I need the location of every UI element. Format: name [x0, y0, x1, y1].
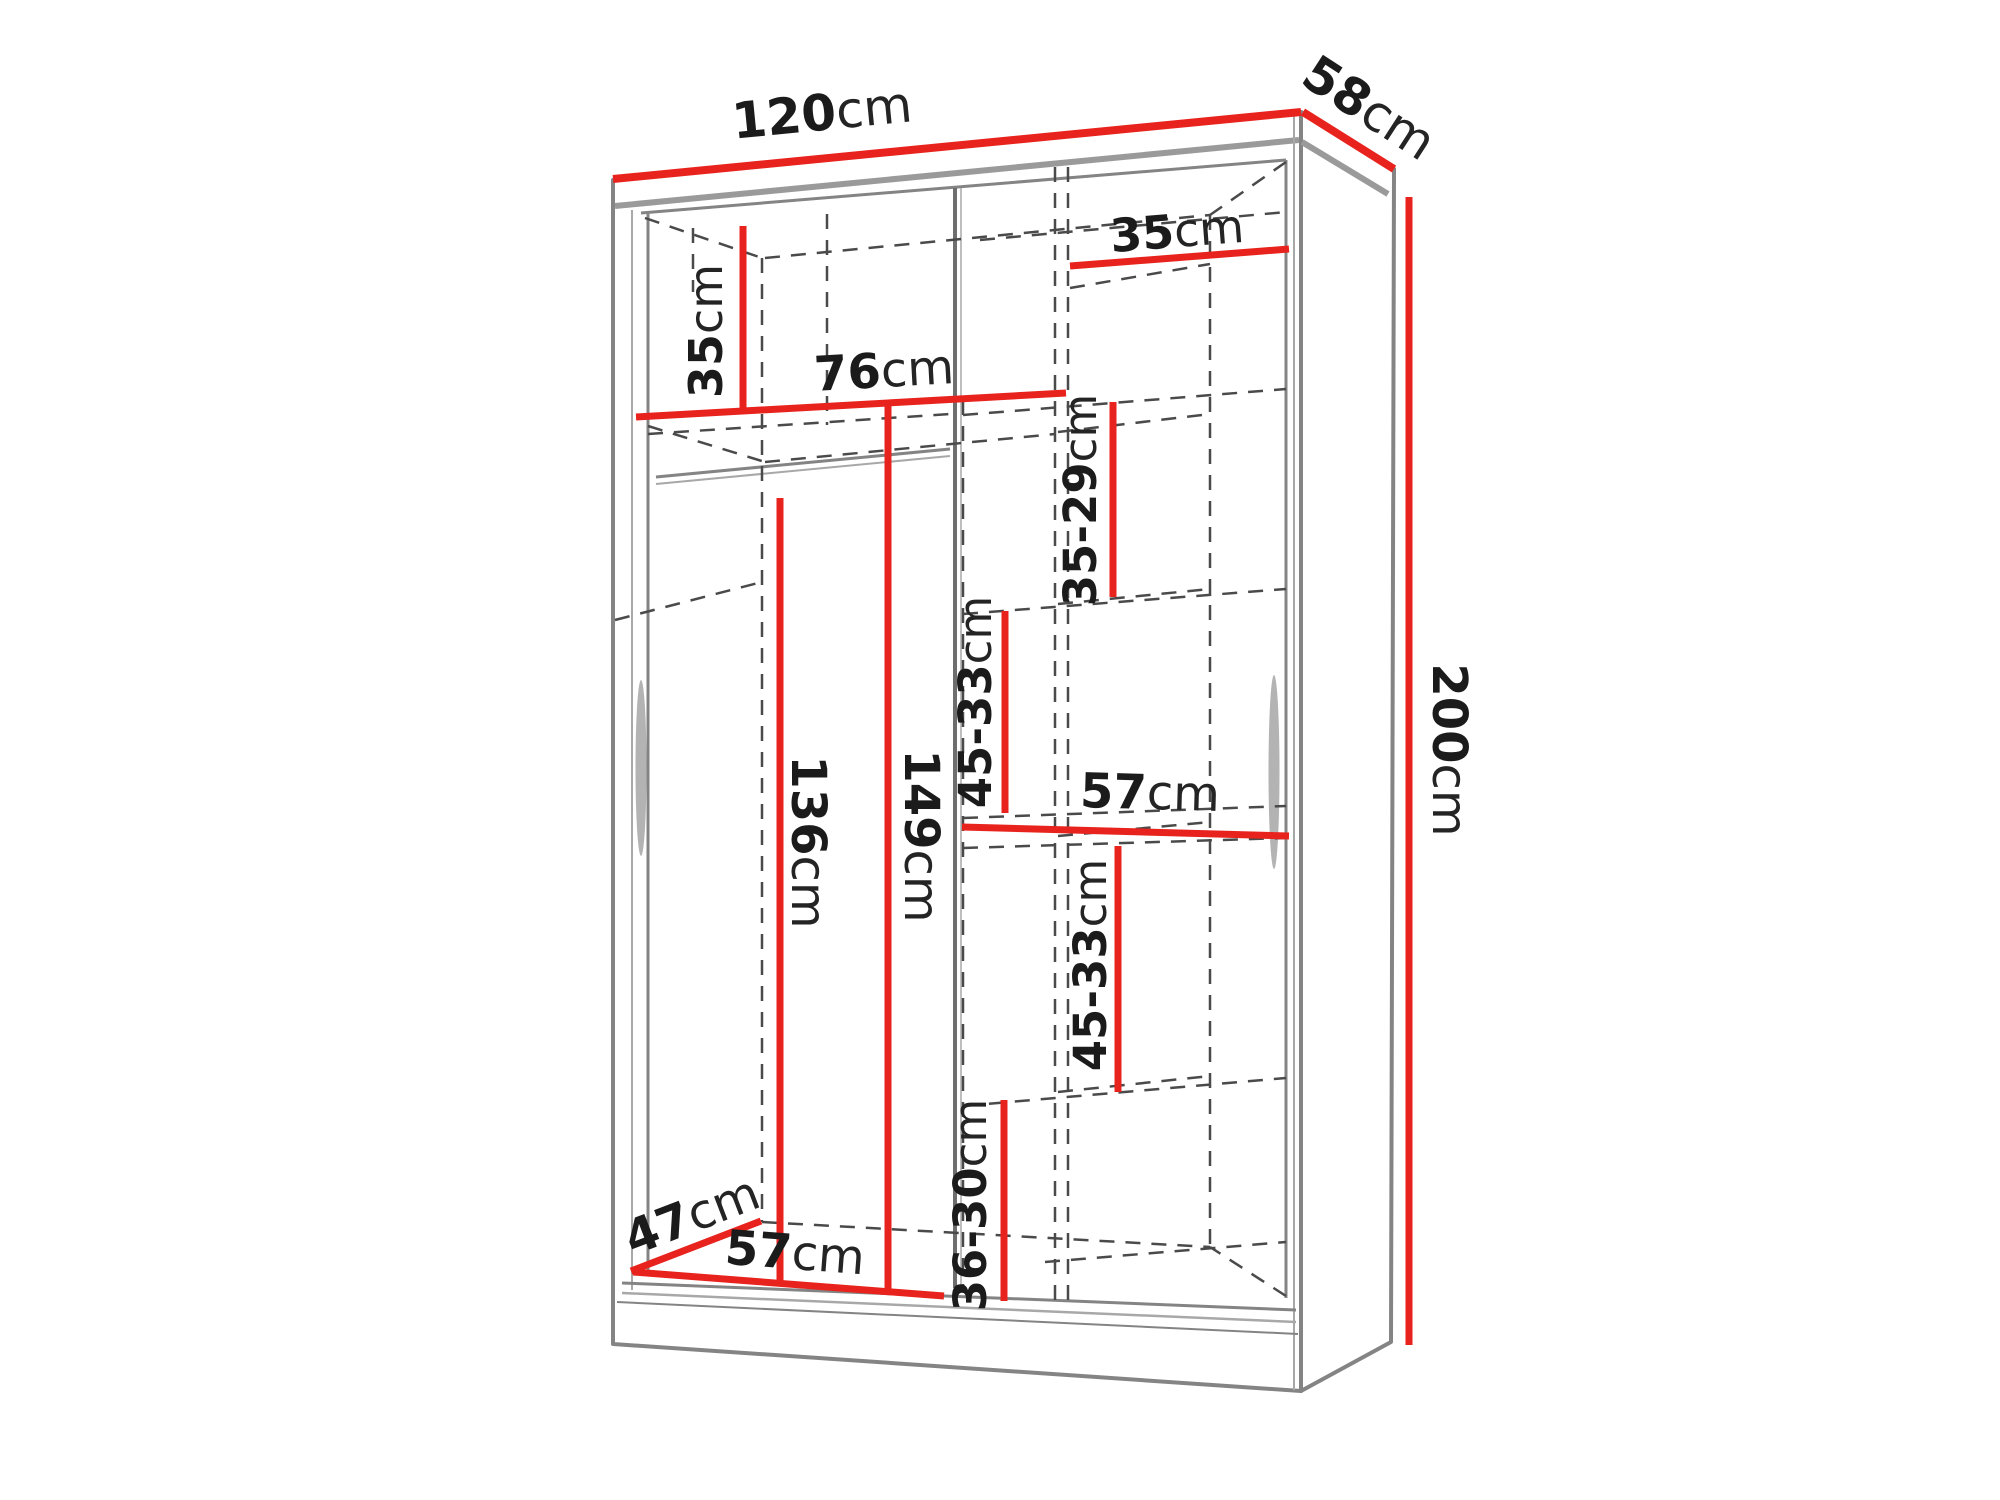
label-height-right: 200cm: [1421, 663, 1477, 836]
diagram-canvas: 120cm 58cm 200cm 35cm 35cm 76cm 35-29cm …: [0, 0, 2000, 1500]
right-door-handle: [1269, 675, 1280, 869]
label-hang-height-left: 136cm: [780, 755, 836, 928]
left-door-handle: [636, 680, 647, 856]
wardrobe-dimension-diagram: 120cm 58cm 200cm 35cm 35cm 76cm 35-29cm …: [0, 0, 2000, 1500]
label-shelf-gap-4: 36-30cm: [944, 1099, 997, 1312]
label-top-right-width: 35cm: [1108, 199, 1246, 263]
label-middle-shelf-width: 57cm: [1079, 763, 1220, 823]
label-left-section-width: 76cm: [813, 339, 956, 403]
label-hang-height-right: 149cm: [893, 749, 949, 922]
label-shelf-gap-2: 45-33cm: [949, 596, 1002, 809]
label-bottom-width: 57cm: [723, 1220, 867, 1287]
label-top-left-height: 35cm: [679, 264, 733, 398]
label-shelf-gap-3: 45-33cm: [1064, 859, 1117, 1072]
right-side-face: [1301, 112, 1394, 1391]
label-width-top: 120cm: [729, 75, 914, 150]
label-shelf-gap-1: 35-29cm: [1054, 394, 1107, 607]
